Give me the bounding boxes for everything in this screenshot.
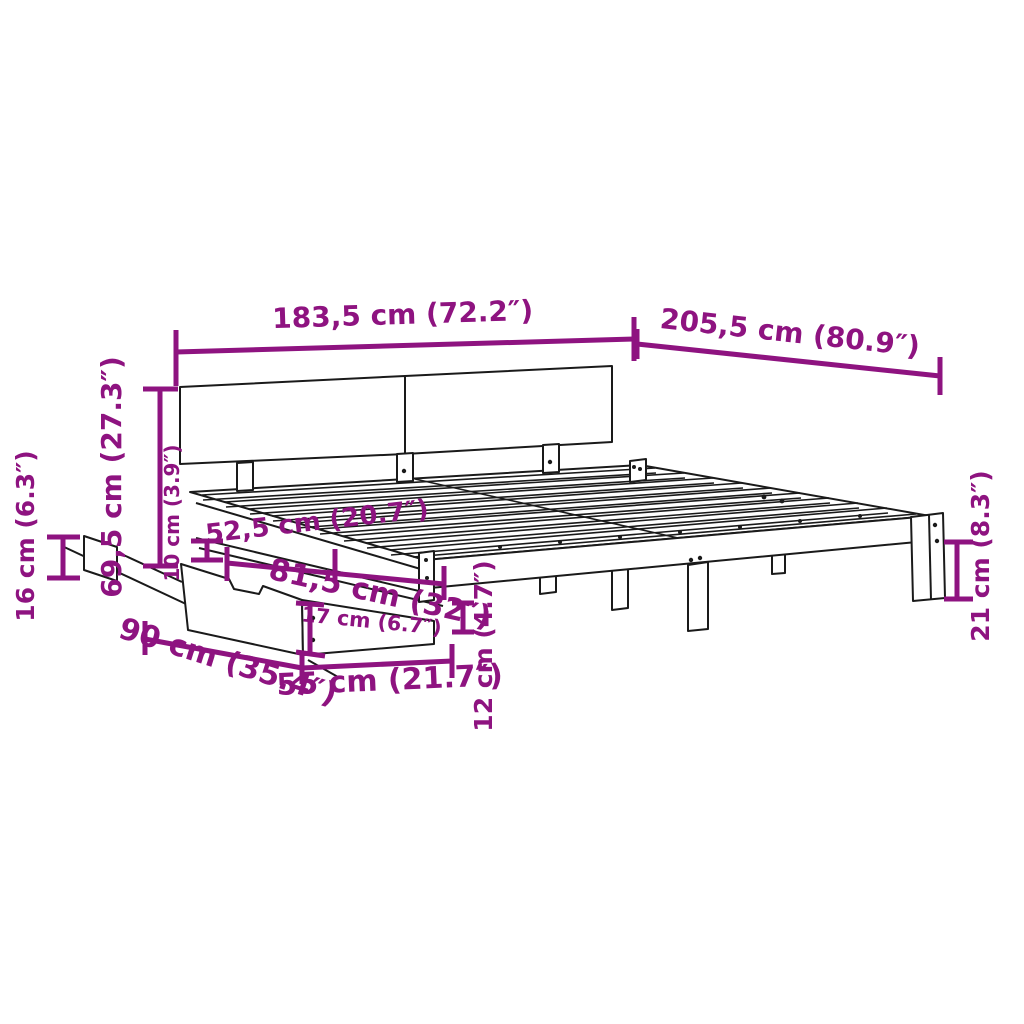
- screw-dot: [689, 558, 693, 562]
- dim-left-rail-height: [47, 537, 80, 578]
- dim-label-side-rail-height: 10 cm (3.9″): [160, 444, 184, 581]
- headboard-post: [543, 444, 559, 473]
- screw-dot: [698, 556, 702, 560]
- headboard-post: [237, 462, 253, 491]
- screw-dot: [678, 530, 682, 534]
- screw-dot: [558, 540, 562, 544]
- headboard-right-panel: [405, 366, 612, 454]
- screw-dot: [618, 535, 622, 539]
- screw-dot: [424, 558, 428, 562]
- front-right-leg: [911, 513, 945, 601]
- screw-dot: [498, 545, 502, 549]
- screw-dot: [762, 495, 767, 500]
- center-front-leg: [688, 562, 708, 631]
- diagram-page: 183,5 cm (72.2″) 205,5 cm (80.9″) 69,5 c…: [0, 0, 1024, 1024]
- bed-frame-line-art: [62, 366, 945, 677]
- headboard-left-panel: [180, 376, 405, 464]
- dim-label-leg-height: 21 cm (8.3″): [966, 470, 995, 641]
- dim-label-frame-length: 205,5 cm (80.9″): [658, 302, 921, 363]
- screw-dot: [780, 499, 785, 504]
- dim-label-frame-front-height: 12 cm (4.7″): [469, 560, 498, 731]
- screw-dot: [858, 514, 862, 518]
- screw-dot: [798, 519, 802, 523]
- screw-dot: [638, 467, 642, 471]
- screw-dot: [632, 465, 636, 469]
- headboard-post: [397, 453, 413, 482]
- dim-label-headboard-width: 183,5 cm (72.2″): [272, 294, 534, 335]
- dim-label-headboard-height: 69,5 cm (27.3″): [95, 356, 128, 598]
- screw-dot: [548, 460, 552, 464]
- dim-label-left-rail-height: 16 cm (6.3″): [11, 450, 40, 621]
- screw-dot: [935, 539, 939, 543]
- screw-dot: [402, 469, 406, 473]
- screw-dot: [738, 525, 742, 529]
- screw-dot: [933, 523, 937, 527]
- back-right-corner-post: [630, 459, 646, 482]
- screw-dot: [425, 576, 429, 580]
- bed-frame-dimension-diagram: 183,5 cm (72.2″) 205,5 cm (80.9″) 69,5 c…: [0, 0, 1024, 1024]
